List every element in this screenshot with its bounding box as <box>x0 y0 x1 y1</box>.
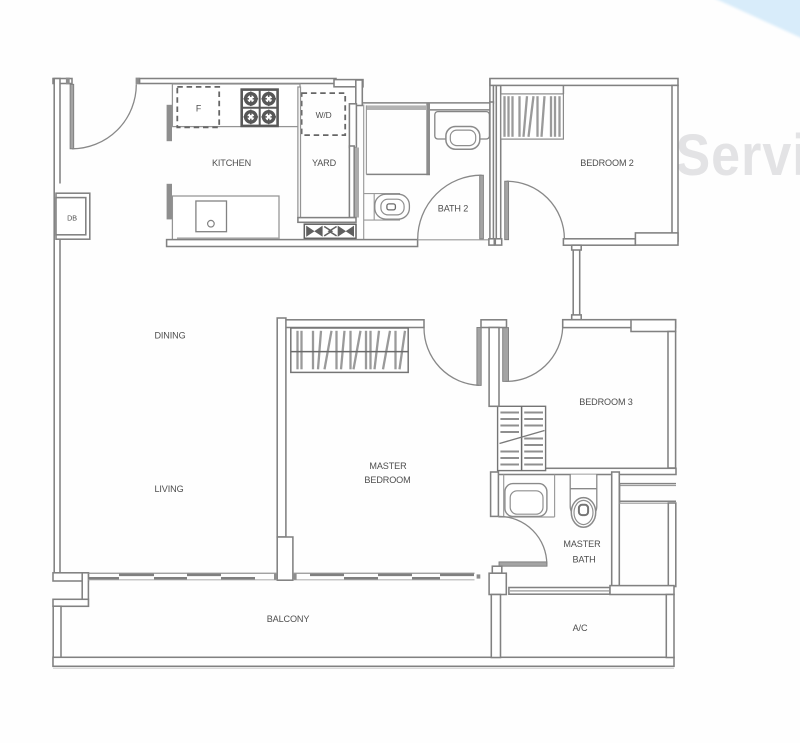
svg-text:LIVING: LIVING <box>154 484 183 494</box>
svg-text:MASTER: MASTER <box>369 461 407 471</box>
svg-text:DINING: DINING <box>154 330 185 340</box>
svg-text:BEDROOM: BEDROOM <box>364 475 410 485</box>
svg-text:A/C: A/C <box>573 623 588 633</box>
svg-text:DB: DB <box>67 213 77 222</box>
svg-text:Servi: Servi <box>676 122 800 188</box>
svg-text:BEDROOM 3: BEDROOM 3 <box>579 397 633 407</box>
svg-text:YARD: YARD <box>312 158 337 168</box>
svg-text:W/D: W/D <box>316 110 332 120</box>
svg-text:BALCONY: BALCONY <box>267 614 310 624</box>
svg-text:F: F <box>196 103 202 113</box>
svg-text:BEDROOM 2: BEDROOM 2 <box>580 158 634 168</box>
svg-text:MASTER: MASTER <box>563 539 601 549</box>
svg-text:BATH 2: BATH 2 <box>438 203 469 213</box>
svg-text:BATH: BATH <box>572 554 595 564</box>
svg-text:KITCHEN: KITCHEN <box>212 158 251 168</box>
